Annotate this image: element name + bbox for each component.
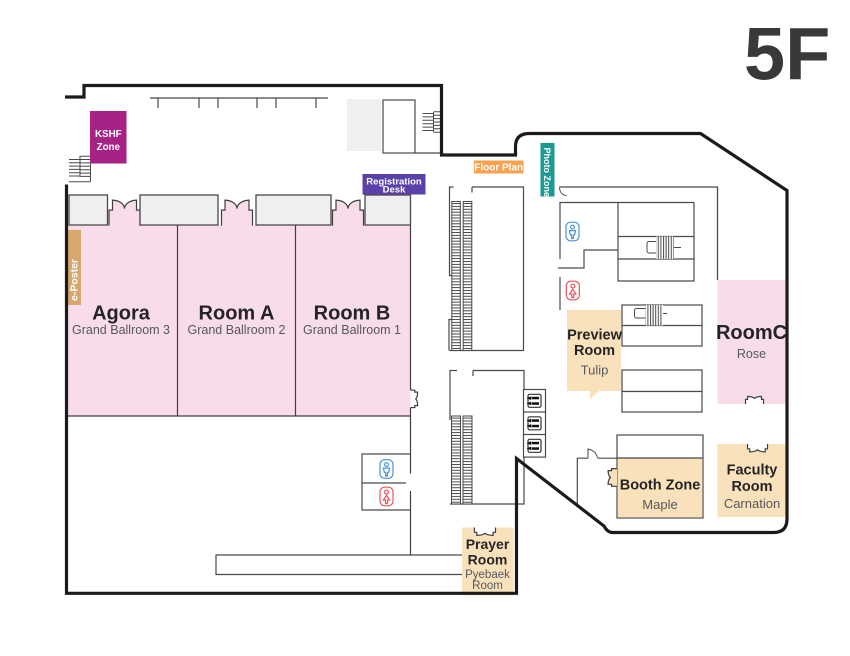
- svg-text:Room: Room: [574, 343, 615, 359]
- svg-text:Grand Ballroom 2: Grand Ballroom 2: [188, 323, 286, 337]
- svg-text:Room A: Room A: [199, 303, 275, 325]
- svg-text:Grand Ballroom 3: Grand Ballroom 3: [72, 323, 170, 337]
- svg-text:Desk: Desk: [383, 185, 406, 196]
- svg-text:Zone: Zone: [97, 142, 121, 153]
- svg-text:Tulip: Tulip: [581, 363, 609, 378]
- svg-text:RoomC: RoomC: [716, 322, 787, 344]
- svg-text:Floor Plan: Floor Plan: [474, 163, 523, 174]
- svg-text:Room B: Room B: [314, 303, 391, 325]
- svg-text:Photo Zone: Photo Zone: [542, 148, 552, 198]
- svg-text:Preview: Preview: [567, 328, 623, 344]
- svg-text:Maple: Maple: [642, 497, 677, 512]
- svg-text:Room: Room: [468, 552, 508, 568]
- svg-text:Rose: Rose: [737, 347, 766, 361]
- svg-text:Room: Room: [731, 479, 772, 495]
- svg-text:e-Poster: e-Poster: [69, 259, 81, 301]
- svg-text:Booth Zone: Booth Zone: [620, 478, 701, 494]
- svg-text:KSHF: KSHF: [95, 129, 122, 140]
- svg-text:Agora: Agora: [92, 303, 151, 325]
- svg-text:Grand Ballroom 1: Grand Ballroom 1: [303, 323, 401, 337]
- svg-text:5F: 5F: [744, 13, 830, 96]
- svg-text:Faculty: Faculty: [727, 463, 778, 479]
- svg-text:Room: Room: [472, 580, 503, 592]
- svg-text:Carnation: Carnation: [724, 496, 780, 511]
- svg-text:Prayer: Prayer: [466, 536, 510, 552]
